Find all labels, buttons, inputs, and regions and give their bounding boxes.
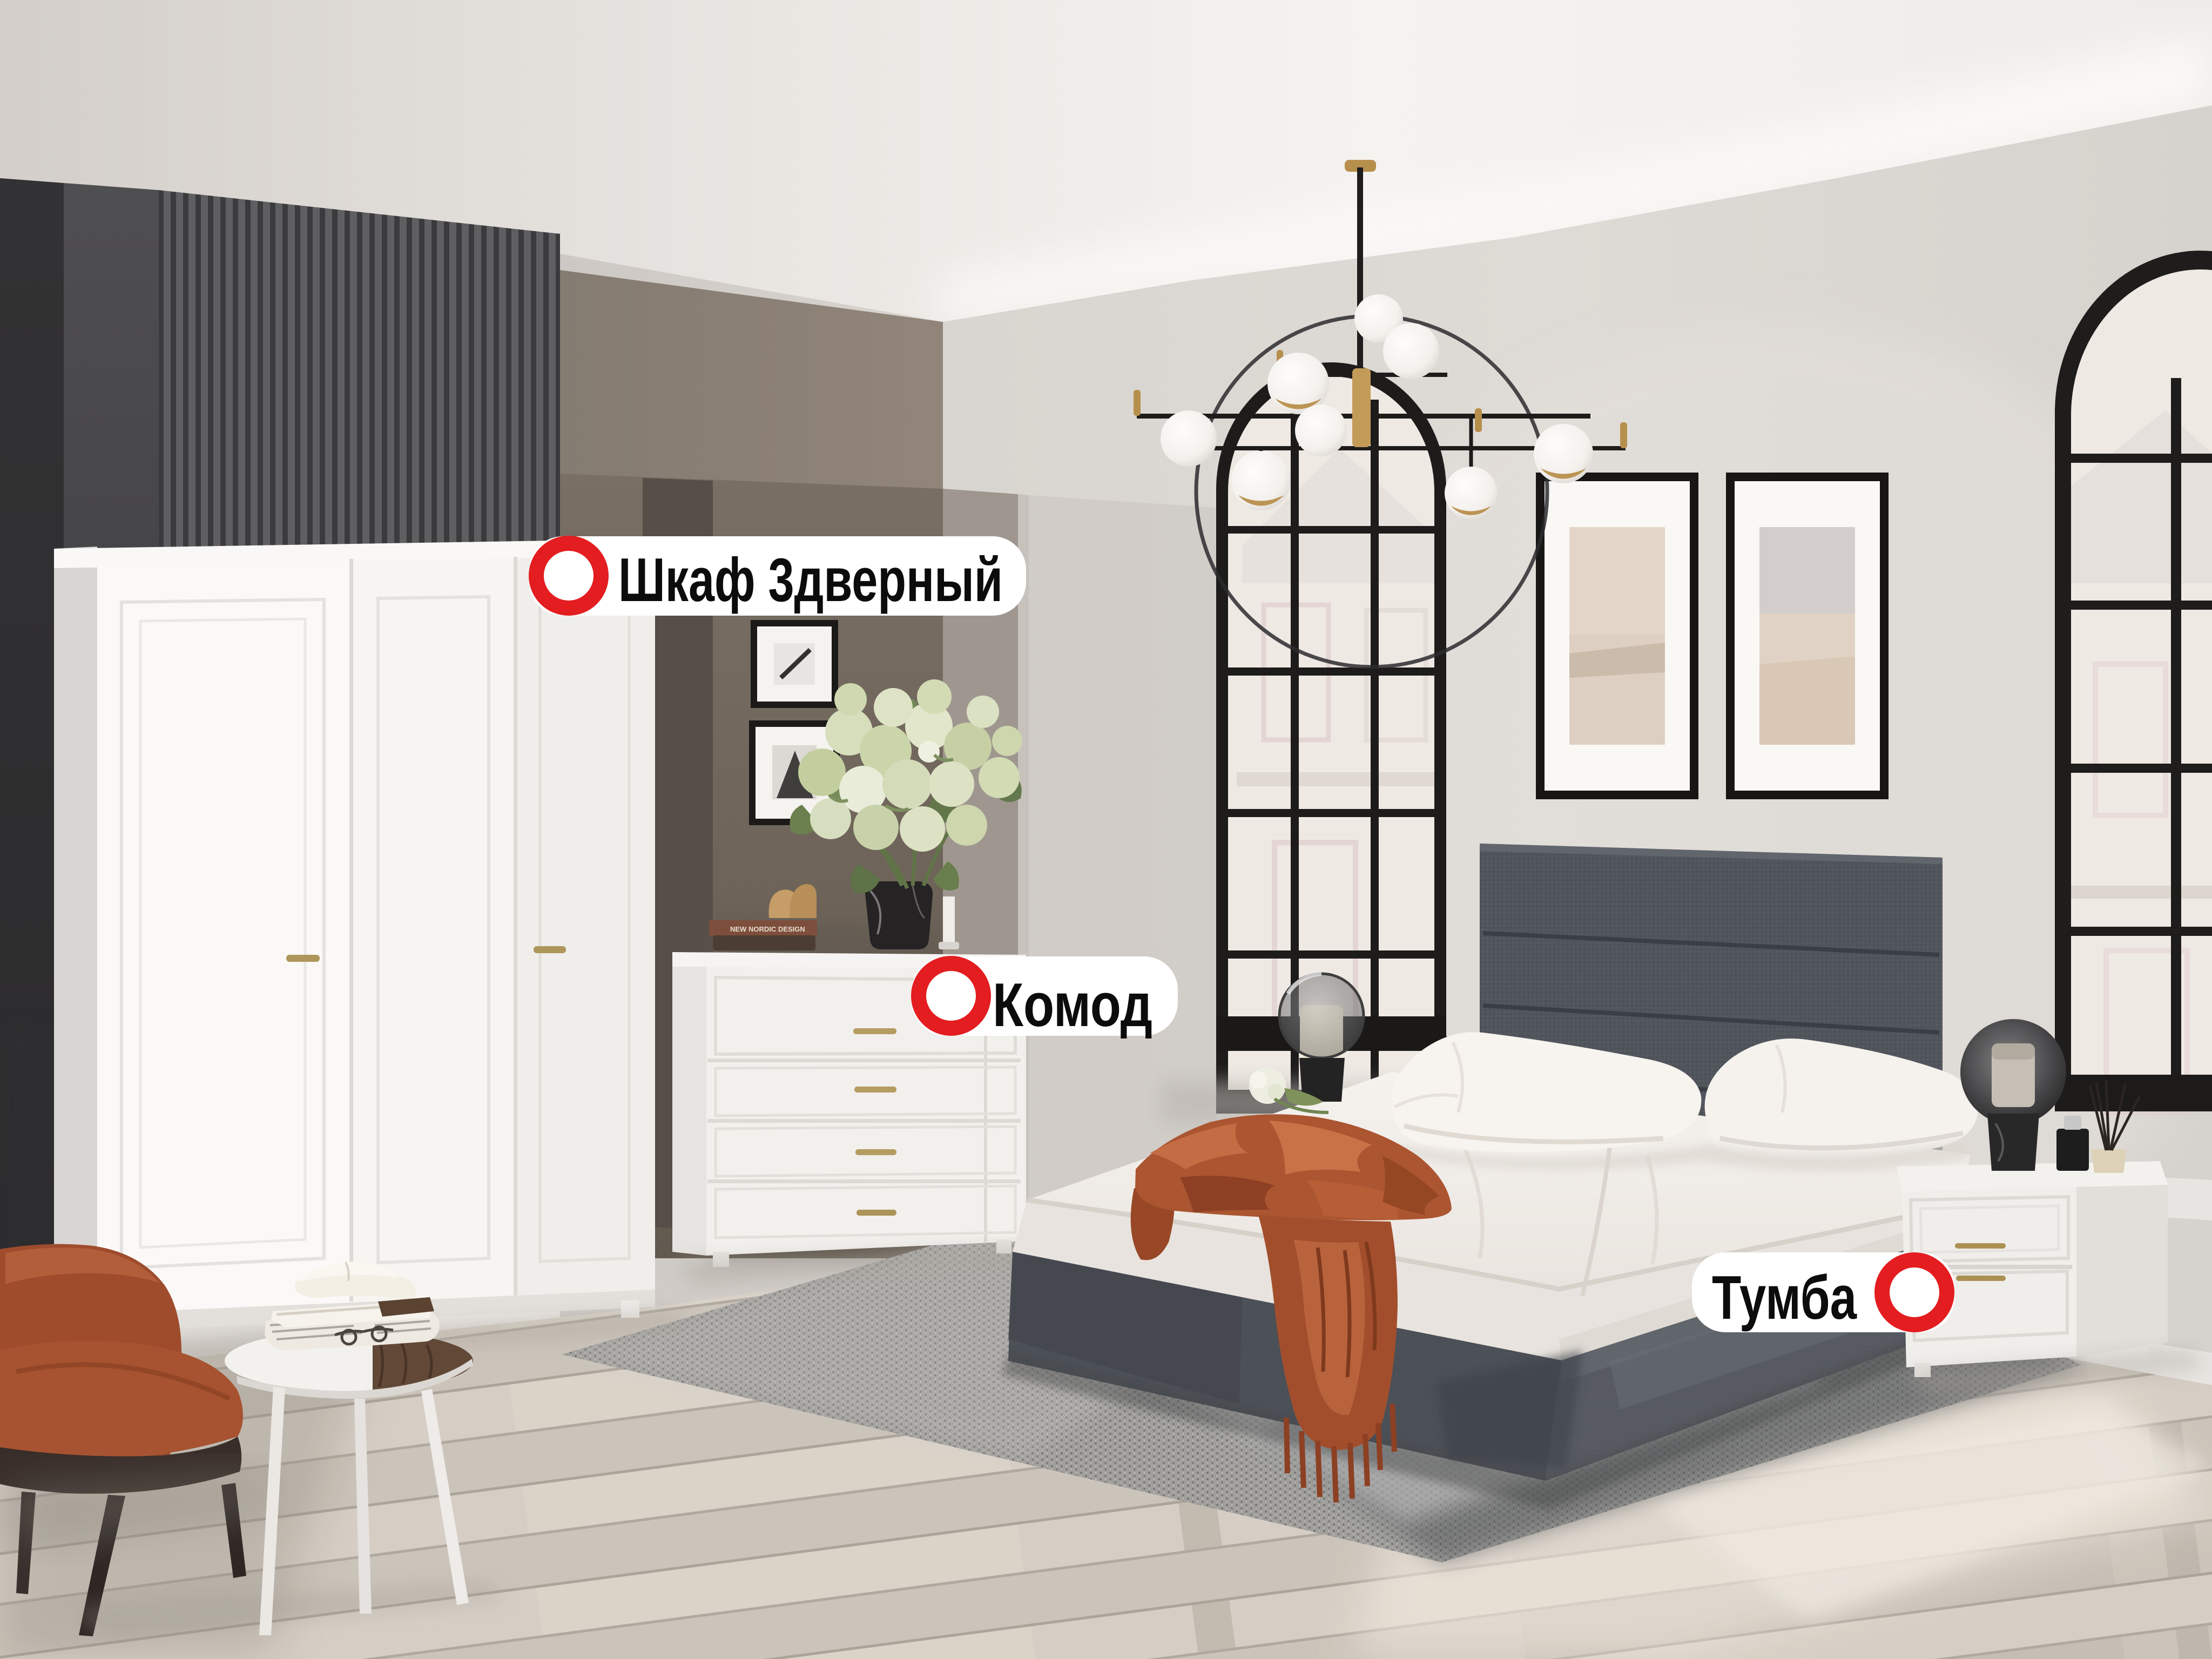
svg-text:Тумба: Тумба [1712, 1264, 1857, 1332]
svg-text:Шкаф 3дверный: Шкаф 3дверный [618, 546, 1003, 615]
svg-text:Комод: Комод [993, 971, 1152, 1040]
